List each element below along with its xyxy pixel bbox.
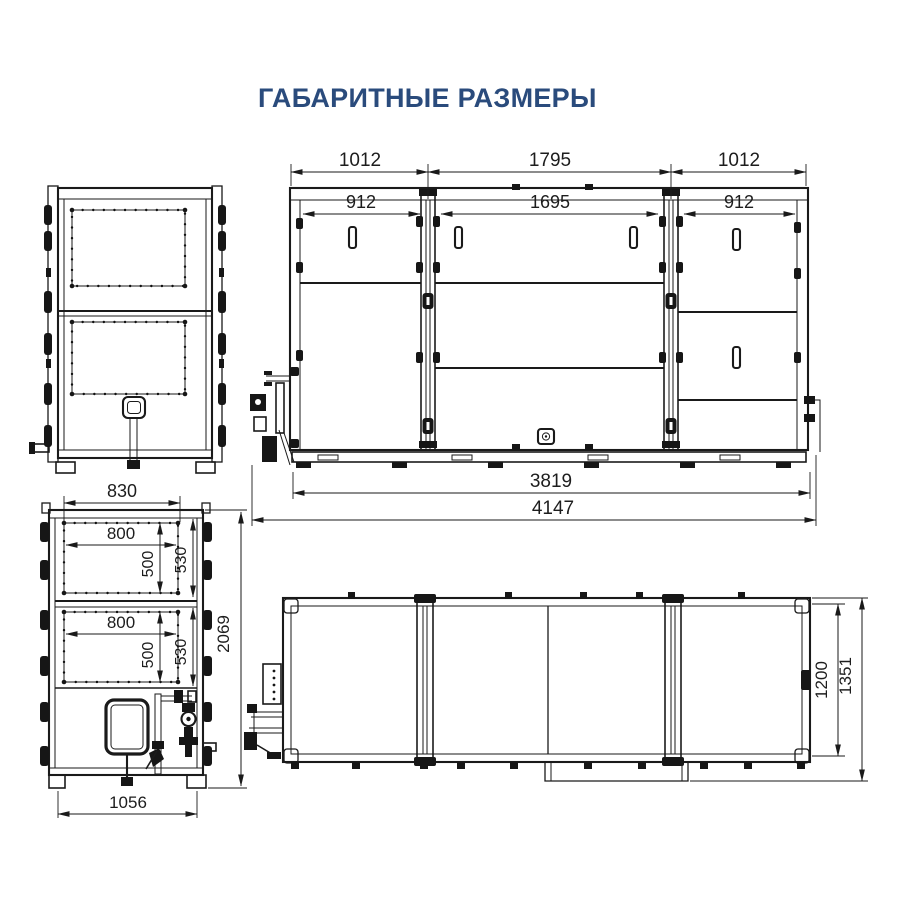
- side-fitting: [804, 396, 820, 452]
- dim-window-top-height: 500: [140, 551, 157, 578]
- dim-frame-width: 830: [107, 481, 137, 501]
- front-dimensions: 830 800 500 530 800 500 530 2069: [58, 481, 247, 818]
- gas-train: [250, 371, 294, 465]
- dim-overall-length: 4147: [532, 498, 574, 519]
- gas-connection: [244, 704, 283, 759]
- dim-window-bottom-width: 800: [107, 613, 135, 632]
- view-front-elevation: 830 800 500 530 800 500 530 2069: [40, 481, 247, 818]
- dim-door-right: 912: [724, 192, 754, 212]
- view-end-elevation: [29, 186, 226, 473]
- dim-window-top-width: 800: [107, 524, 135, 543]
- side-dimensions: 1012 1795 1012 912 1695 912 3819 4147: [252, 150, 816, 526]
- dim-window-bottom-height: 500: [140, 642, 157, 669]
- control-panel: [106, 700, 148, 786]
- view-side-elevation: 1012 1795 1012 912 1695 912 3819 4147: [250, 150, 820, 526]
- dim-section-left: 1012: [339, 150, 381, 171]
- panel-tabs: [291, 592, 811, 769]
- hinges: [44, 205, 226, 447]
- electrical-box: [263, 664, 281, 704]
- dim-section-right: 1012: [718, 150, 760, 171]
- dim-door-middle: 1695: [530, 192, 570, 212]
- dim-door-left: 912: [346, 192, 376, 212]
- dim-section-middle: 1795: [529, 150, 571, 171]
- dim-base-width: 1056: [109, 793, 147, 812]
- dim-door-top-height: 530: [173, 547, 190, 574]
- drawing-sheet: ГАБАРИТНЫЕ РАЗМЕРЫ: [0, 0, 900, 900]
- base-skid: [292, 452, 806, 468]
- dim-body-width: 1200: [812, 661, 831, 699]
- dimensional-drawing: 1012 1795 1012 912 1695 912 3819 4147: [0, 0, 900, 900]
- drain-box: [538, 429, 554, 444]
- dim-door-bottom-height: 530: [173, 639, 190, 666]
- lower-window: [70, 320, 188, 397]
- latch-clips: [290, 184, 801, 450]
- upper-window: [70, 208, 188, 289]
- dim-overall-height: 2069: [214, 615, 233, 653]
- dim-overall-width: 1351: [836, 657, 855, 695]
- view-plan: 1200 1351: [244, 592, 868, 781]
- dim-skid-length: 3819: [530, 471, 572, 492]
